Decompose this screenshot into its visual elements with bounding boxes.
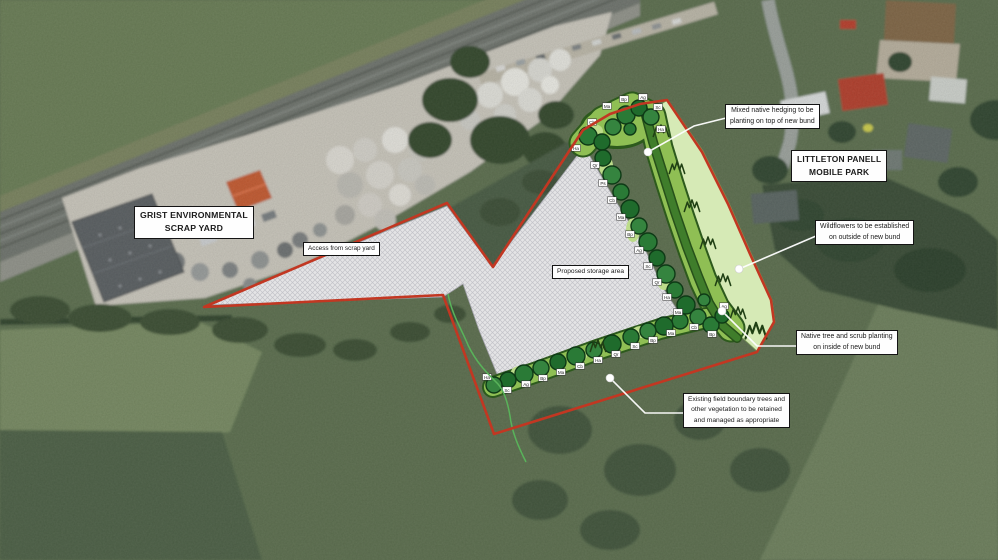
species-tag: Qr (591, 162, 600, 168)
species-tag: Sc (654, 104, 663, 110)
species-tag: Cb (690, 324, 699, 330)
svg-text:Ag: Ag (636, 248, 642, 253)
leader-dot-icon (644, 148, 652, 156)
svg-text:Bp: Bp (627, 232, 633, 237)
tree-symbol (567, 347, 585, 365)
svg-text:Ag: Ag (523, 382, 529, 387)
tree-symbol (643, 109, 659, 125)
callout-line: Mixed native hedging to be (730, 106, 815, 117)
species-tag: Ag (635, 247, 644, 253)
species-tag: Bp (539, 375, 548, 381)
svg-text:Ha: Ha (664, 295, 670, 300)
tree-symbol (698, 294, 710, 306)
leader-dot-icon (606, 374, 614, 382)
svg-text:Ma: Ma (558, 370, 565, 375)
callout-line: MOBILE PARK (797, 166, 881, 179)
species-tag: Bp (620, 96, 629, 102)
svg-text:Sc: Sc (645, 264, 651, 269)
tree-symbol (594, 134, 610, 150)
callout-line: SCRAP YARD (140, 222, 248, 235)
label-proposed-storage-area: Proposed storage area (552, 265, 629, 279)
callout-line: planting on top of new bund (730, 117, 815, 128)
species-tag: Qr (653, 279, 662, 285)
species-tag: Bp (649, 337, 658, 343)
tree-symbol (605, 119, 621, 135)
species-tag: Ma (667, 330, 676, 336)
species-tag: Sc (644, 263, 653, 269)
tree-symbol (515, 365, 533, 383)
svg-text:Bp: Bp (709, 332, 715, 337)
callout-line: on inside of new bund (801, 343, 893, 354)
callout-line: and managed as appropriate (688, 416, 785, 426)
tree-symbol (533, 360, 549, 376)
label-grist-environmental-scrap-yard: GRIST ENVIRONMENTALSCRAP YARD (134, 206, 254, 239)
species-tag: Ha (663, 294, 672, 300)
label-access-from-scrap-yard: Access from scrap yard (303, 242, 380, 256)
svg-text:Ha: Ha (573, 146, 579, 151)
species-tag: Qr (612, 351, 621, 357)
callout-mixed-native-hedging: Mixed native hedging to beplanting on to… (725, 104, 820, 129)
svg-text:Cb: Cb (691, 325, 697, 330)
callout-line: on outside of new bund (820, 233, 909, 244)
svg-text:Cb: Cb (609, 198, 615, 203)
svg-text:Bp: Bp (650, 338, 656, 343)
svg-text:Qr: Qr (613, 352, 619, 357)
svg-text:Bp: Bp (540, 376, 546, 381)
tree-symbol (550, 354, 566, 370)
svg-text:Sc: Sc (632, 344, 638, 349)
species-tag: Ps (599, 180, 608, 186)
species-tag: Bp (626, 231, 635, 237)
species-tag: Cb (576, 363, 585, 369)
species-tag: Ag (639, 94, 648, 100)
callout-native-tree-scrub-planting: Native tree and scrub plantingon inside … (796, 330, 898, 355)
callout-line: Proposed storage area (557, 267, 624, 277)
callout-line: LITTLETON PANELL (797, 153, 881, 166)
svg-text:Qr: Qr (654, 280, 660, 285)
species-tag: Ma (674, 309, 683, 315)
species-tag: Ma (617, 214, 626, 220)
site-plan-canvas: HaCbMaBpAgScHaQrPsCbMaBpAgScQrHaMaCbBpAg… (0, 0, 998, 560)
svg-text:Ha: Ha (658, 127, 664, 132)
svg-text:Ha: Ha (595, 358, 601, 363)
callout-wildflowers: Wildflowers to be establishedon outside … (815, 220, 914, 245)
svg-text:Ma: Ma (675, 310, 682, 315)
svg-text:Ma: Ma (604, 104, 611, 109)
label-littleton-panell-mobile-park: LITTLETON PANELLMOBILE PARK (791, 150, 887, 182)
leader-dot-icon (718, 307, 726, 315)
svg-text:Ag: Ag (640, 95, 646, 100)
species-tag: Sc (631, 343, 640, 349)
svg-text:Qr: Qr (592, 163, 598, 168)
species-tag: Ha (594, 357, 603, 363)
site-plan-map: HaCbMaBpAgScHaQrPsCbMaBpAgScQrHaMaCbBpAg… (0, 0, 998, 560)
svg-text:Sc: Sc (504, 388, 510, 393)
svg-text:Ps: Ps (600, 181, 606, 186)
callout-line: Access from scrap yard (308, 244, 375, 254)
callout-line: Existing field boundary trees and (688, 395, 785, 405)
svg-text:Bp: Bp (621, 97, 627, 102)
species-tag: Ha (657, 126, 666, 132)
svg-text:Cb: Cb (577, 364, 583, 369)
species-tag: Ma (603, 103, 612, 109)
callout-line: other vegetation to be retained (688, 405, 785, 415)
svg-text:Ma: Ma (618, 215, 625, 220)
callout-existing-field-boundary-trees: Existing field boundary trees andother v… (683, 393, 790, 428)
callout-line: Wildflowers to be established (820, 222, 909, 233)
svg-text:Sc: Sc (655, 105, 661, 110)
tree-symbol (624, 123, 636, 135)
species-tag: Ma (557, 369, 566, 375)
species-tag: Ag (522, 381, 531, 387)
callout-line: GRIST ENVIRONMENTAL (140, 209, 248, 222)
leader-dot-icon (735, 265, 743, 273)
species-tag: Bp (708, 331, 717, 337)
svg-text:Ma: Ma (668, 331, 675, 336)
species-tag: Cb (608, 197, 617, 203)
callout-line: Native tree and scrub planting (801, 332, 893, 343)
